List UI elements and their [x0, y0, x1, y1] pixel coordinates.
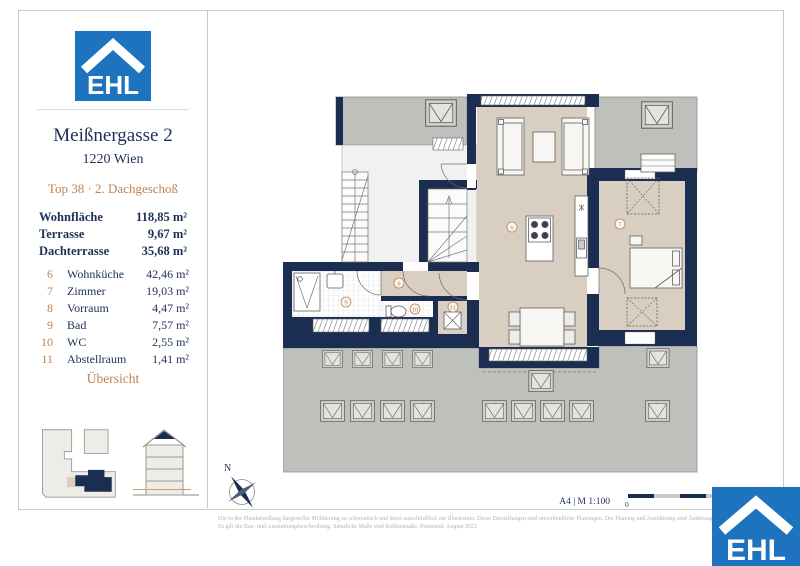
ehl-logo: EHL [75, 31, 151, 101]
room-area: 1,41 m² [152, 351, 189, 368]
room-row: 7 Zimmer 19,03 m² [29, 283, 189, 300]
address-street: Meißnergasse 2 [19, 125, 207, 147]
room-area: 2,55 m² [152, 334, 189, 351]
room-area: 4,47 m² [152, 300, 189, 317]
room-number: 6 [29, 266, 53, 283]
area-row: Wohnfläche 118,85 m² [39, 209, 187, 226]
room-number: 11 [29, 351, 53, 368]
badge-wc: 10 [410, 304, 420, 314]
room-row: 6 Wohnküche 42,46 m² [29, 266, 189, 283]
disclaimer-line2: Es gilt die Bau- und Ausstattungsbeschre… [218, 523, 796, 531]
room-row: 10 WC 2,55 m² [29, 334, 189, 351]
badge-wohnkueche: 6 [507, 222, 517, 232]
area-row: Terrasse 9,67 m² [39, 226, 187, 243]
badge-bad: 9 [341, 297, 351, 307]
room-number: 7 [29, 283, 53, 300]
compass-n-label: N [224, 463, 231, 474]
room-area: 19,03 m² [146, 283, 189, 300]
floorplan-drawing: 6 7 8 9 10 11 [283, 80, 713, 476]
ehl-logo-text: EHL [87, 70, 139, 100]
overview-section [131, 423, 201, 503]
scale-bar [628, 494, 718, 498]
sidebar: EHL Meißnergasse 2 1220 Wien Top 38 · 2.… [19, 11, 207, 507]
ehl-logo-footer: EHL [712, 487, 800, 566]
room-name: Abstellraum [67, 351, 152, 368]
floorplan-sheet: EHL Meißnergasse 2 1220 Wien Top 38 · 2.… [0, 0, 800, 566]
room-number: 10 [29, 334, 53, 351]
svg-text:8: 8 [397, 280, 400, 287]
format-scale-label: A4 | M 1:100 [500, 497, 610, 507]
svg-text:11: 11 [450, 304, 456, 311]
disclaimer-line1: Die in der Plandarstellung dargestellte … [218, 515, 796, 523]
room-list: 6 Wohnküche 42,46 m² 7 Zimmer 19,03 m² 8… [29, 266, 189, 368]
room-number: 9 [29, 317, 53, 334]
disclaimer: Die in der Plandarstellung dargestellte … [218, 515, 796, 531]
address-city: 1220 Wien [19, 152, 207, 168]
badge-abstellraum: 11 [448, 302, 458, 312]
svg-text:10: 10 [412, 306, 419, 313]
room-row: 8 Vorraum 4,47 m² [29, 300, 189, 317]
scale-zero-label: 0 [625, 500, 629, 509]
room-name: WC [67, 334, 152, 351]
room-area: 42,46 m² [146, 266, 189, 283]
badge-vorraum: 8 [394, 278, 404, 288]
stairs-winder [428, 189, 467, 262]
accent-rule [133, 489, 191, 490]
area-row: Dachterrasse 35,68 m² [39, 243, 187, 260]
sidebar-divider [207, 10, 208, 508]
room-row: 9 Bad 7,57 m² [29, 317, 189, 334]
room-name: Vorraum [67, 300, 152, 317]
area-summary: Wohnfläche 118,85 m² Terrasse 9,67 m² Da… [39, 209, 187, 260]
stairs-hall [342, 170, 368, 263]
area-label: Terrasse [39, 226, 84, 243]
room-name: Wohnküche [67, 266, 146, 283]
logo-rule [37, 109, 189, 110]
svg-text:9: 9 [344, 299, 347, 306]
overview-footprint [37, 423, 119, 503]
area-value: 35,68 m² [142, 243, 187, 260]
area-label: Wohnfläche [39, 209, 103, 226]
unit-line: Top 38 · 2. Dachgeschoß [19, 181, 207, 197]
area-value: 118,85 m² [136, 209, 187, 226]
ehl-logo-footer-text: EHL [726, 534, 786, 566]
room-area: 7,57 m² [152, 317, 189, 334]
room-row: 11 Abstellraum 1,41 m² [29, 351, 189, 368]
overview-title: Übersicht [19, 371, 207, 387]
room-number: 8 [29, 300, 53, 317]
room-name: Zimmer [67, 283, 146, 300]
room-name: Bad [67, 317, 152, 334]
badge-zimmer: 7 [615, 219, 625, 229]
compass: N [218, 460, 264, 514]
area-label: Dachterrasse [39, 243, 109, 260]
area-value: 9,67 m² [148, 226, 187, 243]
